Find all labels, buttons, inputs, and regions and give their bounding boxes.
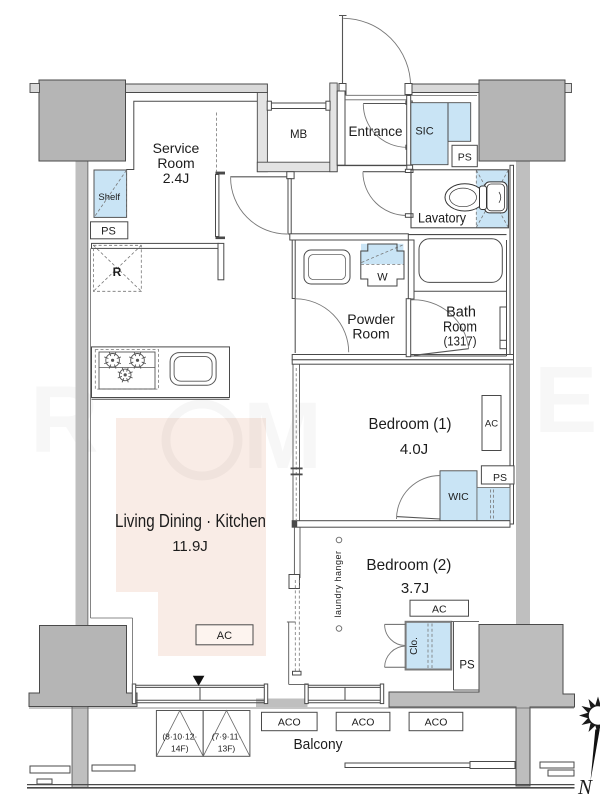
- svg-text:Lavatory: Lavatory: [418, 210, 466, 226]
- svg-text:ACO: ACO: [425, 717, 448, 729]
- svg-text:R: R: [113, 265, 122, 279]
- svg-text:11.9J: 11.9J: [172, 538, 208, 555]
- svg-text:(1317): (1317): [444, 334, 477, 349]
- svg-text:Shelf: Shelf: [98, 192, 120, 203]
- svg-text:Balcony: Balcony: [294, 736, 343, 753]
- svg-text:2.4J: 2.4J: [163, 170, 189, 186]
- svg-text:SIC: SIC: [415, 126, 433, 138]
- svg-text:Bath: Bath: [446, 305, 476, 321]
- svg-text:ACO: ACO: [278, 717, 301, 729]
- svg-text:PS: PS: [493, 472, 507, 484]
- svg-text:(8·10·12·: (8·10·12·: [162, 732, 197, 742]
- svg-text:Bedroom (1): Bedroom (1): [369, 416, 452, 433]
- svg-text:(7·9·11·: (7·9·11·: [212, 732, 242, 742]
- svg-text:N: N: [577, 775, 593, 799]
- svg-text:14F): 14F): [171, 744, 189, 754]
- svg-text:W: W: [377, 272, 388, 284]
- svg-text:R: R: [30, 367, 99, 473]
- svg-text:3.7J: 3.7J: [401, 580, 429, 597]
- svg-text:PS: PS: [459, 660, 475, 672]
- svg-text:Clo.: Clo.: [409, 637, 420, 655]
- svg-text:laundry hanger: laundry hanger: [333, 550, 343, 617]
- svg-text:Service: Service: [153, 140, 200, 156]
- svg-text:13F): 13F): [218, 744, 236, 754]
- svg-text:Bedroom (2): Bedroom (2): [366, 557, 451, 574]
- svg-text:M: M: [243, 383, 322, 489]
- svg-text:WIC: WIC: [448, 491, 469, 503]
- svg-text:MB: MB: [290, 129, 308, 141]
- svg-text:AC: AC: [485, 419, 498, 430]
- svg-text:AC: AC: [217, 630, 232, 642]
- svg-text:Room: Room: [157, 155, 194, 171]
- svg-text:ACO: ACO: [352, 717, 375, 729]
- svg-text:PS: PS: [101, 226, 116, 238]
- svg-text:Living Dining · Kitchen: Living Dining · Kitchen: [115, 510, 266, 531]
- svg-text:4.0J: 4.0J: [400, 441, 428, 458]
- svg-text:AC: AC: [432, 603, 447, 615]
- svg-text:E: E: [534, 347, 597, 453]
- svg-text:Entrance: Entrance: [349, 123, 403, 139]
- svg-text:PS: PS: [458, 151, 472, 163]
- svg-text:Room: Room: [352, 326, 389, 342]
